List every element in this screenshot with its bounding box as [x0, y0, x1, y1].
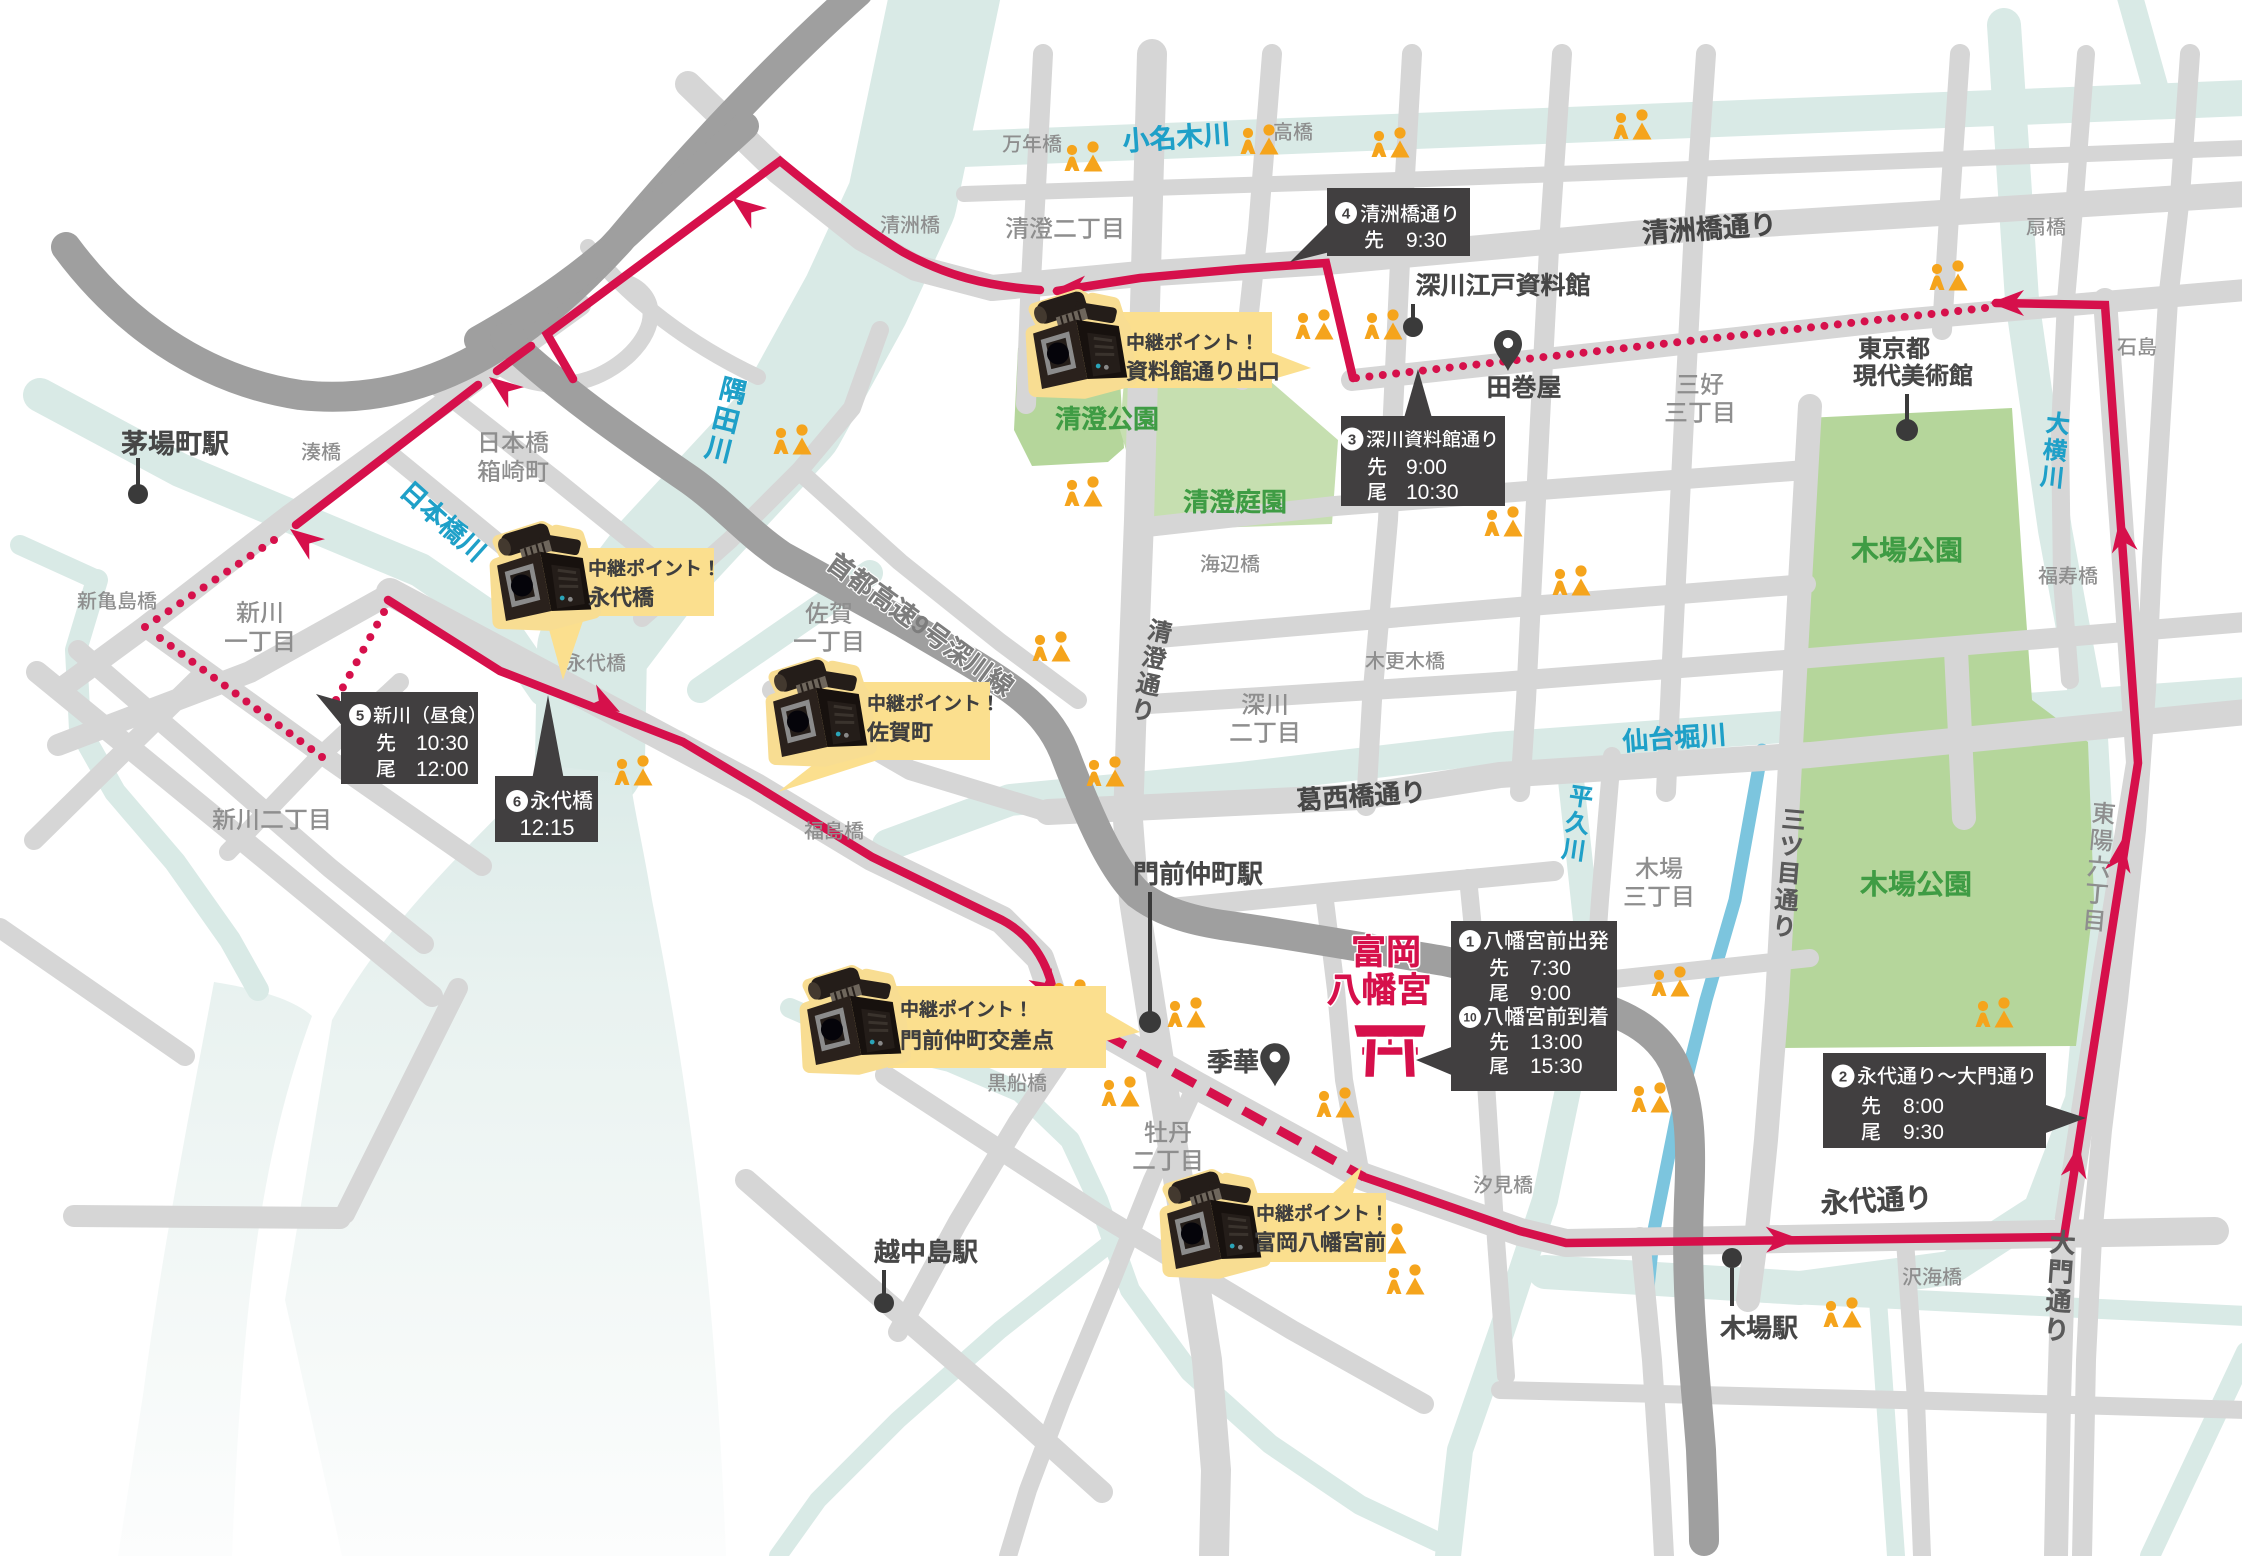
- svg-text:10: 10: [1463, 1010, 1477, 1024]
- svg-text:2: 2: [1839, 1068, 1847, 1085]
- svg-text:12:00: 12:00: [416, 758, 469, 781]
- svg-text:7:30: 7:30: [1530, 957, 1571, 980]
- svg-text:5: 5: [356, 707, 364, 724]
- svg-text:9:30: 9:30: [1406, 229, 1447, 252]
- svg-text:3: 3: [1348, 431, 1356, 448]
- svg-text:1: 1: [1466, 933, 1474, 950]
- svg-text:12:15: 12:15: [519, 815, 574, 840]
- svg-text:9:30: 9:30: [1903, 1121, 1944, 1144]
- svg-text:9:00: 9:00: [1530, 982, 1571, 1005]
- svg-text:10:30: 10:30: [416, 732, 469, 755]
- svg-text:6: 6: [513, 793, 521, 810]
- svg-text:15:30: 15:30: [1530, 1055, 1583, 1078]
- svg-text:4: 4: [1342, 205, 1351, 222]
- svg-text:13:00: 13:00: [1530, 1031, 1583, 1054]
- svg-text:10:30: 10:30: [1406, 481, 1459, 504]
- svg-text:8:00: 8:00: [1903, 1095, 1944, 1118]
- svg-text:9:00: 9:00: [1406, 456, 1447, 479]
